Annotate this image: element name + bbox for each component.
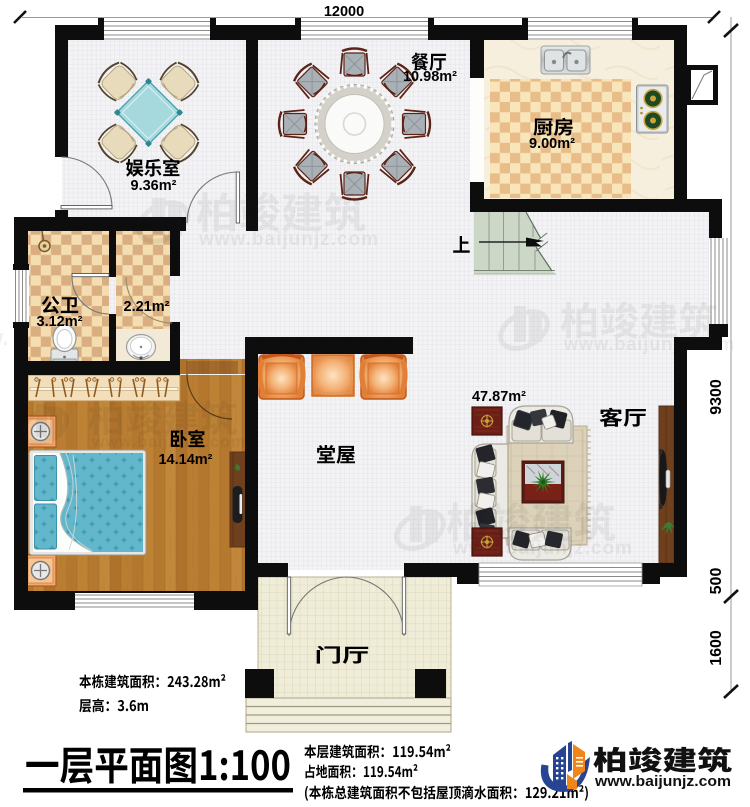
svg-text:www.baijunjz.com: www.baijunjz.com	[563, 334, 735, 354]
svg-text:47.87m²: 47.87m²	[472, 389, 526, 405]
svg-text:3.12m²: 3.12m²	[37, 314, 83, 330]
svg-text:1600: 1600	[708, 630, 725, 666]
svg-text:9300: 9300	[708, 379, 725, 415]
svg-text:14.14m²: 14.14m²	[158, 452, 212, 468]
svg-text:w.: w.	[0, 325, 8, 350]
svg-text:www.baijunjz.com: www.baijunjz.com	[91, 434, 246, 451]
svg-text:12000: 12000	[324, 4, 364, 20]
svg-text:www.baijunjz.com: www.baijunjz.com	[594, 773, 731, 790]
svg-text:500: 500	[708, 568, 725, 595]
svg-text:www.baijunjz.com: www.baijunjz.com	[198, 229, 379, 250]
svg-text:www.baijunjz.com: www.baijunjz.com	[452, 538, 633, 559]
svg-text:2.21m²: 2.21m²	[124, 299, 170, 315]
svg-text:9.00m²: 9.00m²	[529, 136, 575, 152]
svg-text:10.98m²: 10.98m²	[403, 69, 457, 85]
svg-text:9.36m²: 9.36m²	[131, 178, 177, 194]
